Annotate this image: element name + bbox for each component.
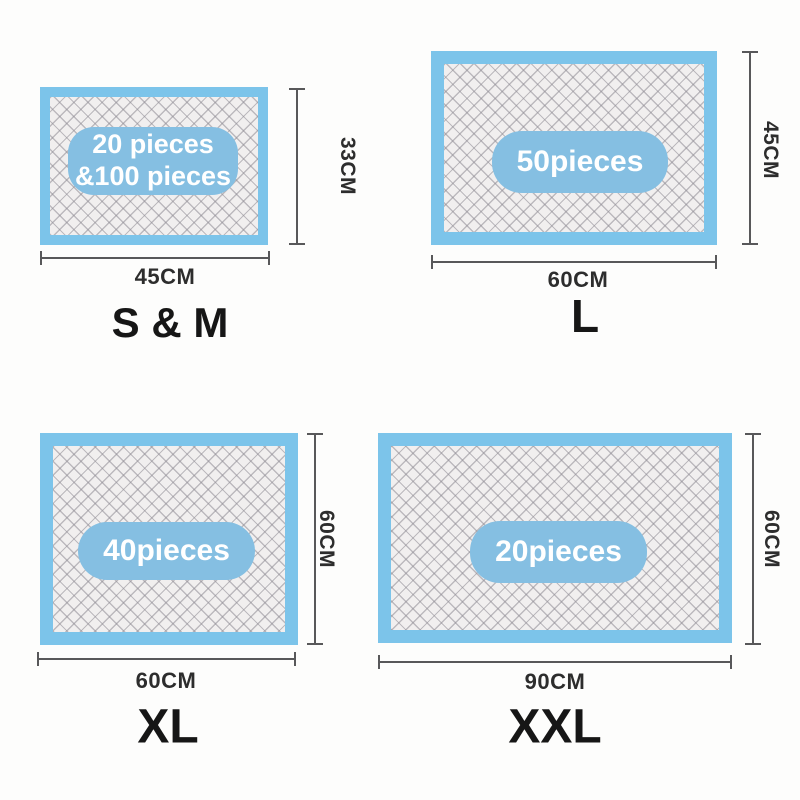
pieces-badge-xl: 40pieces [78,522,255,580]
width-label-xxl: 90CM [525,669,586,695]
height-dimension-line-l [749,51,751,245]
height-label-xxl: 60CM [759,510,783,568]
pieces-badge-line1: 20pieces [495,534,622,569]
pad-xxl: 20pieces [378,433,732,643]
size-title-l: L [571,289,599,343]
pieces-badge-xxl: 20pieces [470,521,647,583]
pieces-badge-line1: 20 pieces [92,129,214,161]
pad-l: 50pieces [431,51,717,245]
pieces-badge-line1: 40pieces [103,533,230,568]
height-label-xl: 60CM [314,510,338,568]
width-dimension-line-xl [37,658,296,660]
pad-s-m: 20 pieces &100 pieces [40,87,268,245]
pad-xl: 40pieces [40,433,298,645]
width-label-xl: 60CM [136,668,197,694]
pieces-badge-s-m: 20 pieces &100 pieces [68,127,238,195]
size-title-xl: XL [137,700,198,755]
height-label-l: 45CM [758,121,782,179]
width-dimension-line-s-m [40,257,270,259]
width-label-s-m: 45CM [135,264,196,290]
size-title-xxl: XXL [508,700,601,755]
pieces-badge-l: 50pieces [492,131,668,193]
height-dimension-line-xxl [752,433,754,645]
width-dimension-line-xxl [378,661,732,663]
size-title-s-m: S & M [112,299,229,347]
pieces-badge-line2: &100 pieces [75,161,231,193]
height-label-s-m: 33CM [335,137,359,195]
pieces-badge-line1: 50pieces [517,144,644,179]
width-dimension-line-l [431,261,717,263]
height-dimension-line-s-m [296,88,298,245]
size-chart: 20 pieces &100 pieces 33CM 45CM S & M 50… [0,0,800,800]
